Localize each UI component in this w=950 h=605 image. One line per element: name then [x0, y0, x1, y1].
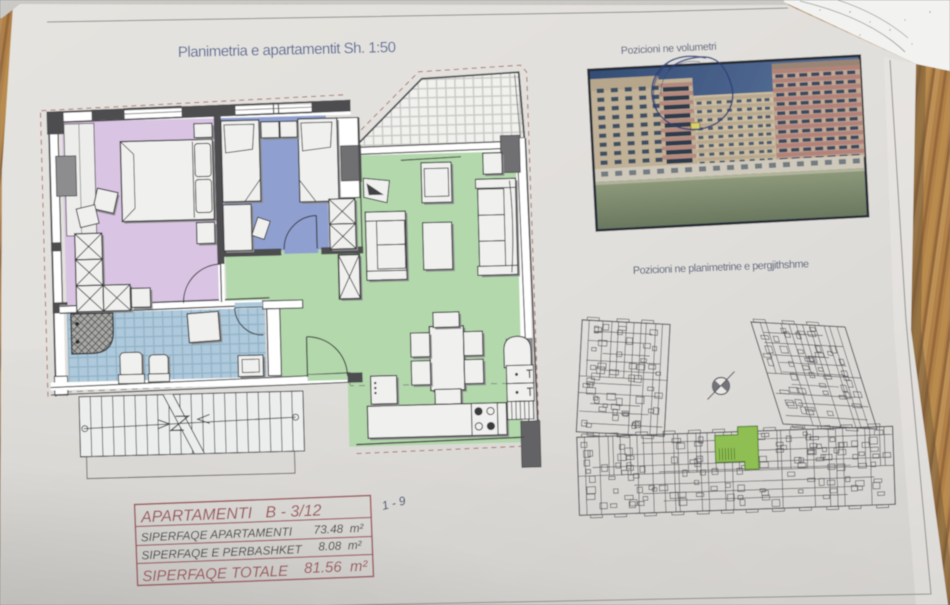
svg-text:8.08 m²: 8.08 m²	[318, 538, 363, 554]
svg-text:73.48 m²: 73.48 m²	[313, 521, 364, 537]
svg-text:81.56 m²: 81.56 m²	[304, 558, 369, 577]
